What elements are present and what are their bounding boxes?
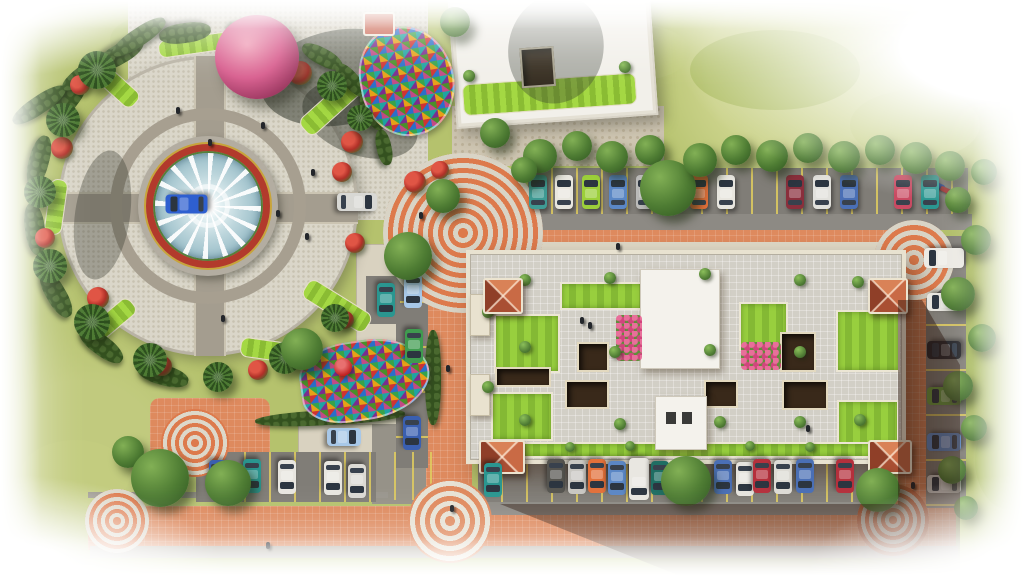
- car: [403, 416, 421, 450]
- car-rear-window: [776, 464, 790, 469]
- car-roof-highlight: [351, 475, 363, 484]
- tree: [941, 277, 975, 311]
- car-roof-highlight: [843, 189, 855, 198]
- roof-shrub: [714, 416, 726, 428]
- paving-rings: [408, 479, 492, 563]
- car-rear-window: [842, 200, 856, 205]
- car-windshield: [280, 482, 294, 489]
- car-windshield: [349, 430, 356, 444]
- car-roof-highlight: [327, 472, 339, 481]
- car-rear-window: [610, 465, 624, 470]
- palm-tree: [33, 249, 67, 283]
- tree: [721, 135, 751, 165]
- car-windshield: [896, 180, 910, 187]
- car-rear-window: [486, 467, 500, 472]
- car-roof-highlight: [612, 189, 624, 198]
- grass-patch: [965, 290, 1024, 420]
- car-roof-highlight: [179, 198, 188, 211]
- person: [806, 425, 810, 432]
- car: [717, 175, 735, 209]
- tree: [865, 135, 895, 165]
- person: [261, 122, 265, 129]
- car-rear-window: [798, 463, 812, 468]
- palm-tree: [24, 176, 56, 208]
- car-rear-window: [379, 287, 393, 292]
- car-roof-highlight: [558, 189, 570, 198]
- person: [616, 243, 620, 250]
- car-roof-highlight: [408, 340, 420, 349]
- car-rear-window: [557, 200, 571, 205]
- car-rear-window: [405, 420, 419, 425]
- car-windshield: [838, 481, 852, 488]
- person: [419, 212, 423, 219]
- car-rear-window: [584, 200, 598, 205]
- car-roof-highlight: [897, 189, 909, 198]
- roof-shrub: [604, 272, 616, 284]
- penthouse: [655, 396, 707, 450]
- tree: [793, 133, 823, 163]
- car-roof-highlight: [611, 472, 623, 481]
- car-rear-window: [245, 463, 259, 468]
- car-roof-highlight: [571, 471, 583, 480]
- car-roof-highlight: [632, 477, 646, 486]
- roof-shrub: [794, 346, 806, 358]
- car-windshield: [716, 482, 730, 489]
- car-windshield: [932, 295, 939, 309]
- south-sidewalk: [90, 546, 958, 558]
- kiosk-red-roof: [363, 12, 395, 36]
- car-windshield: [932, 477, 939, 491]
- car-windshield: [611, 180, 625, 187]
- car-rear-window: [326, 465, 340, 470]
- car: [753, 459, 771, 493]
- car-rear-window: [198, 197, 203, 212]
- courtyard-opening: [495, 367, 551, 387]
- roof-shrub: [794, 274, 806, 286]
- car-windshield: [486, 485, 500, 492]
- roof-shrub: [852, 276, 864, 288]
- person: [911, 482, 915, 489]
- car-rear-window: [923, 200, 937, 205]
- palm-tree: [203, 362, 233, 392]
- car-roof-highlight: [591, 470, 603, 479]
- flower-bush: [431, 161, 449, 179]
- van: [629, 458, 649, 500]
- car-rear-window: [952, 435, 957, 449]
- car-roof-highlight: [380, 294, 392, 303]
- car: [774, 460, 792, 494]
- car-windshield: [929, 250, 936, 266]
- car-rear-window: [896, 200, 910, 205]
- roof-shrub: [794, 416, 806, 428]
- car-rear-window: [570, 464, 584, 469]
- roof-shrub: [618, 61, 631, 74]
- car-roof-highlight: [550, 470, 562, 479]
- palm-tree: [133, 343, 167, 377]
- car-windshield: [610, 483, 624, 490]
- roof-shrub: [699, 268, 711, 280]
- car: [348, 464, 366, 498]
- car-roof-highlight: [354, 196, 363, 208]
- tree: [440, 7, 470, 37]
- car-windshield: [549, 481, 563, 488]
- car: [582, 175, 600, 209]
- car-windshield: [557, 180, 571, 187]
- car: [547, 459, 565, 493]
- tree: [131, 449, 189, 507]
- car-rear-window: [788, 200, 802, 205]
- site-plan-rendering: [0, 0, 1024, 576]
- car-rear-window: [350, 468, 364, 473]
- car-windshield: [788, 180, 802, 187]
- tree: [856, 468, 900, 512]
- car-rear-window: [341, 195, 346, 209]
- car-rear-window: [407, 333, 421, 338]
- car: [894, 175, 912, 209]
- corner-pavilion: [483, 278, 523, 314]
- play-umbrella: [334, 358, 352, 376]
- north-building-roof: [448, 0, 659, 129]
- roof-garden: [560, 282, 649, 310]
- car-roof-highlight: [941, 436, 950, 448]
- roof-shrub: [854, 414, 866, 426]
- car: [484, 463, 502, 497]
- roof-door: [666, 412, 676, 424]
- person: [588, 322, 592, 329]
- car: [608, 461, 626, 495]
- car-roof-highlight: [924, 189, 936, 198]
- car-rear-window: [531, 200, 545, 205]
- tree: [900, 142, 932, 174]
- roof-shrub: [519, 414, 531, 426]
- tree: [205, 460, 251, 506]
- roof-shrub: [704, 344, 716, 356]
- car-roof-highlight: [487, 474, 499, 483]
- car-roof-highlight: [839, 470, 851, 479]
- car-roof-highlight: [585, 189, 597, 198]
- van: [924, 248, 964, 268]
- tree: [756, 140, 788, 172]
- roof-shrub: [565, 442, 575, 452]
- car: [588, 459, 606, 493]
- flower-bush: [332, 162, 352, 182]
- courtyard-opening: [577, 342, 609, 372]
- car-roof-highlight: [717, 471, 729, 480]
- car-roof-highlight: [816, 189, 828, 198]
- car-windshield: [776, 482, 790, 489]
- palm-tree: [78, 51, 116, 89]
- roof-shrub: [625, 441, 635, 451]
- tree: [961, 225, 991, 255]
- car-roof-highlight: [938, 251, 947, 265]
- car-rear-window: [838, 463, 852, 468]
- main-residential-building-roof: [466, 250, 906, 464]
- tree: [480, 118, 510, 148]
- car: [927, 341, 961, 359]
- car-windshield: [350, 486, 364, 493]
- roof-shrub: [745, 441, 755, 451]
- tree: [511, 157, 537, 183]
- car: [278, 460, 296, 494]
- flower-bush: [404, 171, 426, 193]
- car-windshield: [631, 488, 647, 495]
- car-rear-window: [716, 464, 730, 469]
- car-windshield: [738, 484, 752, 491]
- car-rear-window: [331, 430, 336, 444]
- car-rear-window: [719, 200, 733, 205]
- car: [813, 175, 831, 209]
- car: [568, 460, 586, 494]
- tree: [954, 496, 978, 520]
- car: [786, 175, 804, 209]
- flower-bush: [51, 137, 73, 159]
- person: [276, 210, 280, 217]
- car-windshield: [584, 180, 598, 187]
- tree: [281, 328, 323, 370]
- car-rear-window: [590, 463, 604, 468]
- car-roof-highlight: [799, 470, 811, 479]
- person: [305, 233, 309, 240]
- tree: [945, 187, 971, 213]
- car-rear-window: [549, 463, 563, 468]
- person: [266, 542, 270, 549]
- palm-tree: [317, 71, 347, 101]
- palm-tree: [46, 103, 80, 137]
- tree: [683, 143, 717, 177]
- car-roof-highlight: [777, 471, 789, 480]
- flowering-tree: [215, 15, 299, 99]
- corner-pavilion: [868, 278, 908, 314]
- car-roof-highlight: [720, 189, 732, 198]
- car: [714, 460, 732, 494]
- car-windshield: [570, 482, 584, 489]
- car: [796, 459, 814, 493]
- car-roof-highlight: [789, 189, 801, 198]
- car: [555, 175, 573, 209]
- car: [405, 329, 423, 363]
- tree: [935, 151, 965, 181]
- car-windshield: [923, 180, 937, 187]
- courtyard-opening: [565, 380, 609, 409]
- car-windshield: [405, 438, 419, 445]
- courtyard-opening: [704, 380, 738, 408]
- roof-door: [682, 412, 692, 424]
- car-roof-highlight: [406, 427, 418, 436]
- tree: [661, 456, 711, 506]
- person: [580, 317, 584, 324]
- tree: [968, 324, 996, 352]
- tree: [562, 131, 592, 161]
- palm-tree: [321, 304, 349, 332]
- car: [609, 175, 627, 209]
- car-windshield: [932, 389, 939, 403]
- car-roof-highlight: [739, 473, 751, 482]
- car-windshield: [326, 483, 340, 490]
- grass-patch: [690, 30, 860, 110]
- car-roof-highlight: [338, 431, 347, 443]
- car-windshield: [531, 180, 545, 187]
- car-rear-window: [280, 464, 294, 469]
- car-roof-highlight: [407, 285, 419, 294]
- car-windshield: [932, 343, 939, 357]
- person: [311, 169, 315, 176]
- car-windshield: [755, 481, 769, 488]
- roof-shrub: [609, 346, 621, 358]
- car: [377, 283, 395, 317]
- car-roof-highlight: [281, 471, 293, 480]
- car-rear-window: [952, 343, 957, 357]
- car: [165, 195, 207, 214]
- car-rear-window: [755, 463, 769, 468]
- flower-bush: [35, 228, 55, 248]
- roof-shrub: [614, 418, 626, 430]
- car: [324, 461, 342, 495]
- palm-tree: [347, 105, 373, 131]
- tree: [596, 141, 628, 173]
- car-rear-window: [815, 200, 829, 205]
- car-windshield: [170, 197, 177, 212]
- car-rear-window: [692, 200, 706, 205]
- car: [836, 459, 854, 493]
- car-rear-window: [611, 200, 625, 205]
- tree: [828, 141, 860, 173]
- car-windshield: [798, 481, 812, 488]
- tree: [384, 232, 432, 280]
- flower-bush: [345, 233, 365, 253]
- palm-tree: [74, 304, 110, 340]
- person: [450, 505, 454, 512]
- flower-bush: [248, 360, 268, 380]
- person: [176, 107, 180, 114]
- car-windshield: [365, 195, 372, 209]
- car-roof-highlight: [941, 344, 950, 356]
- person: [446, 365, 450, 372]
- roof-shrub: [482, 381, 494, 393]
- tree: [961, 415, 987, 441]
- person: [208, 139, 212, 146]
- roof-shrub: [463, 69, 476, 82]
- car: [840, 175, 858, 209]
- car-windshield: [407, 351, 421, 358]
- tree: [426, 179, 460, 213]
- car: [736, 462, 754, 496]
- car-windshield: [719, 180, 733, 187]
- car-windshield: [815, 180, 829, 187]
- flower-bed: [741, 342, 781, 370]
- tree: [971, 159, 997, 185]
- flower-bush: [341, 131, 363, 153]
- car: [921, 175, 939, 209]
- roof-shrub: [519, 341, 531, 353]
- car-windshield: [590, 481, 604, 488]
- car-roof-highlight: [756, 470, 768, 479]
- courtyard-opening: [782, 380, 828, 410]
- car-roof-highlight: [532, 189, 544, 198]
- car-rear-window: [738, 466, 752, 471]
- car-windshield: [842, 180, 856, 187]
- car-windshield: [379, 305, 393, 312]
- roof-garden: [836, 310, 900, 372]
- car-windshield: [932, 435, 939, 449]
- roof-shrub: [805, 442, 815, 452]
- car: [327, 428, 361, 446]
- car-windshield: [406, 296, 420, 303]
- person: [221, 315, 225, 322]
- car: [927, 433, 961, 451]
- car: [337, 193, 377, 211]
- tree: [938, 456, 966, 484]
- tree: [943, 371, 973, 401]
